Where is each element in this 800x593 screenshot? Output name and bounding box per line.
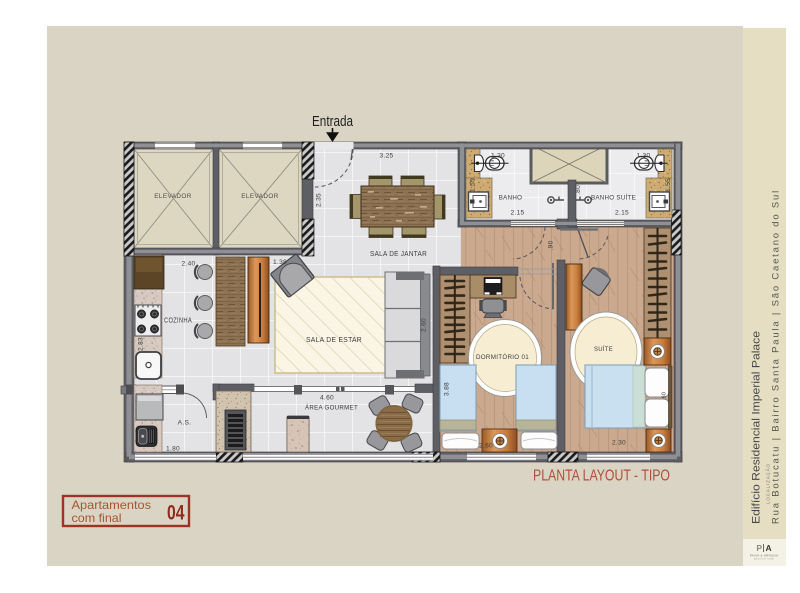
svg-text:A: A [766, 543, 772, 553]
svg-text:PAIVA & ARRUDA: PAIVA & ARRUDA [750, 554, 779, 558]
svg-text:Apartamentos: Apartamentos [72, 498, 152, 512]
svg-text:04: 04 [167, 502, 185, 525]
svg-text:P: P [756, 543, 762, 553]
svg-text:ARQUITETURA: ARQUITETURA [754, 558, 774, 561]
svg-text:Rua Botucatu | Bairro Santa Pa: Rua Botucatu | Bairro Santa Paula | São … [771, 189, 782, 524]
svg-text:Edifício Residencial Imperial: Edifício Residencial Imperial Palace [751, 331, 763, 524]
svg-text:com final: com final [72, 511, 122, 525]
